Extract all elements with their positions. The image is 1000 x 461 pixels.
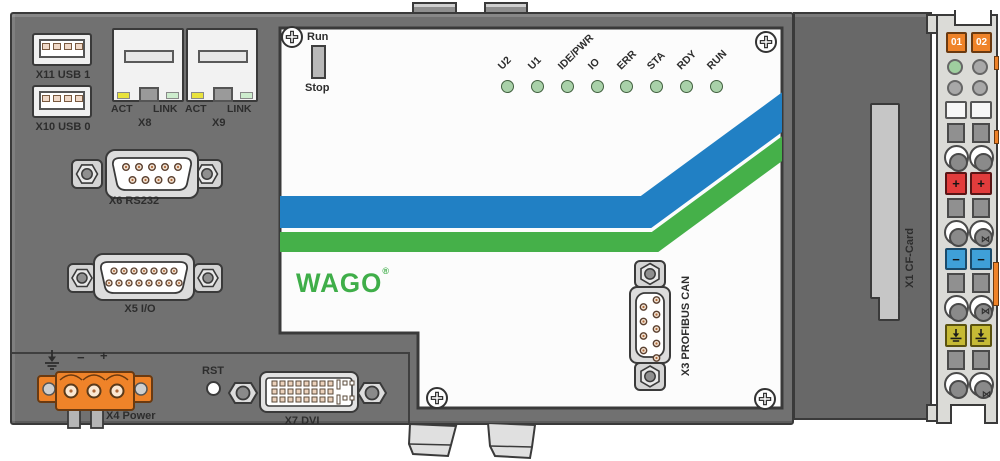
module-latch <box>994 130 999 144</box>
status-led-io <box>591 80 604 93</box>
usb-socket-opening <box>39 39 85 58</box>
reset-button <box>206 381 221 396</box>
status-led-u1 <box>531 80 544 93</box>
power-plus-marking: + <box>100 349 108 363</box>
release-slot-icon: ⋈ <box>982 389 991 400</box>
usb-port-x10 <box>32 85 92 118</box>
eth-x9-label: X9 <box>212 117 225 129</box>
eth-x8-label: X8 <box>138 117 151 129</box>
status-led-u2 <box>501 80 514 93</box>
mounting-foot <box>404 423 460 459</box>
earth-ground-icon <box>45 350 59 369</box>
link-led <box>166 92 179 99</box>
rj45-latch-tab <box>213 87 233 102</box>
ethernet-port-x9 <box>186 28 258 102</box>
chassis-right-section <box>793 12 932 420</box>
usb-pin <box>75 95 83 102</box>
wire-opening <box>944 295 969 320</box>
mounting-foot <box>483 423 541 460</box>
db9-rs232-connector <box>66 146 228 202</box>
terminal-24v-plus: + <box>945 172 967 195</box>
module-led <box>972 59 988 75</box>
rj45-slot <box>124 50 174 63</box>
eth-x9-act-label: ACT <box>185 104 207 116</box>
terminal-earth <box>945 324 967 347</box>
usb-pin <box>75 43 83 50</box>
status-led-err <box>620 80 633 93</box>
terminal-post <box>947 273 965 293</box>
rj45-slot <box>198 50 248 63</box>
status-led-sta <box>650 80 663 93</box>
earth-ground-icon <box>974 328 988 343</box>
module-led <box>947 80 963 96</box>
usb-port-x11 <box>32 33 92 66</box>
module-latch <box>994 56 999 70</box>
address-tab-01: 01 <box>946 32 967 53</box>
link-led <box>240 92 253 99</box>
eth-x9-link-label: LINK <box>227 104 252 116</box>
usb-pin <box>53 95 61 102</box>
module-led <box>972 80 988 96</box>
usb-pin <box>53 43 61 50</box>
dvi-label: X7 DVI <box>270 415 334 427</box>
terminal-earth <box>970 324 992 347</box>
module-push-button <box>945 101 967 119</box>
terminal-24v-plus: + <box>970 172 992 195</box>
profibus-label: X3 PROFIBUS CAN <box>680 276 692 376</box>
terminal-0v-minus: − <box>945 248 967 270</box>
stop-label: Stop <box>305 82 329 94</box>
terminal-post <box>947 350 965 370</box>
terminal-post <box>947 198 965 218</box>
earth-ground-icon <box>949 328 963 343</box>
module-bottom-notch <box>950 404 986 424</box>
phillips-screw-icon <box>281 26 303 48</box>
power-minus-marking: − <box>77 351 85 365</box>
eth-x8-link-label: LINK <box>153 104 178 116</box>
cf-card-slot-step <box>878 297 900 321</box>
registered-mark: ® <box>382 266 389 276</box>
eth-x8-act-label: ACT <box>111 104 133 116</box>
wire-opening <box>944 220 969 245</box>
io-label: X5 I/O <box>100 303 180 315</box>
cf-card-slot <box>870 103 900 299</box>
reset-label: RST <box>202 365 224 377</box>
usb-pin <box>64 95 72 102</box>
usb-x10-label: X10 USB 0 <box>30 121 96 133</box>
module-top-notch <box>954 10 992 26</box>
run-label: Run <box>307 31 328 43</box>
wire-opening <box>969 145 994 170</box>
run-stop-switch <box>311 45 326 79</box>
module-status-led <box>947 59 963 75</box>
cf-card-label: X1 CF-Card <box>904 228 916 288</box>
status-led-run <box>710 80 723 93</box>
usb-pin <box>42 43 50 50</box>
profibus-can-connector <box>626 256 674 396</box>
terminal-post <box>972 273 990 293</box>
act-led <box>191 92 204 99</box>
wire-opening <box>944 145 969 170</box>
module-latch <box>993 262 999 306</box>
rj45-latch-tab <box>139 87 159 102</box>
wago-controller-illustration: X11 USB 1 X10 USB 0 ACT LINK X8 ACT LINK… <box>0 0 1000 461</box>
rs232-label: X6 RS232 <box>89 195 179 207</box>
release-slot-icon: ⋈ <box>981 306 990 317</box>
phillips-screw-icon <box>426 387 448 409</box>
usb-socket-opening <box>39 91 85 110</box>
module-push-button <box>970 101 992 119</box>
wire-opening <box>944 372 969 397</box>
status-led-rdy <box>680 80 693 93</box>
terminal-post <box>972 123 990 143</box>
db15-io-connector <box>64 252 226 304</box>
wago-logo: WAGO® <box>296 266 389 300</box>
release-slot-icon: ⋈ <box>981 234 990 245</box>
usb-pin <box>42 95 50 102</box>
terminal-post <box>947 123 965 143</box>
power-label: X4 Power <box>106 410 156 422</box>
terminal-0v-minus: − <box>970 248 992 270</box>
usb-pin <box>64 43 72 50</box>
usb-x11-label: X11 USB 1 <box>30 69 96 81</box>
ethernet-port-x8 <box>112 28 184 102</box>
status-led-idepwr <box>561 80 574 93</box>
phillips-screw-icon <box>755 31 777 53</box>
phillips-screw-icon <box>754 388 776 410</box>
terminal-post <box>972 198 990 218</box>
terminal-post <box>972 350 990 370</box>
act-led <box>117 92 130 99</box>
address-tab-02: 02 <box>971 32 992 53</box>
